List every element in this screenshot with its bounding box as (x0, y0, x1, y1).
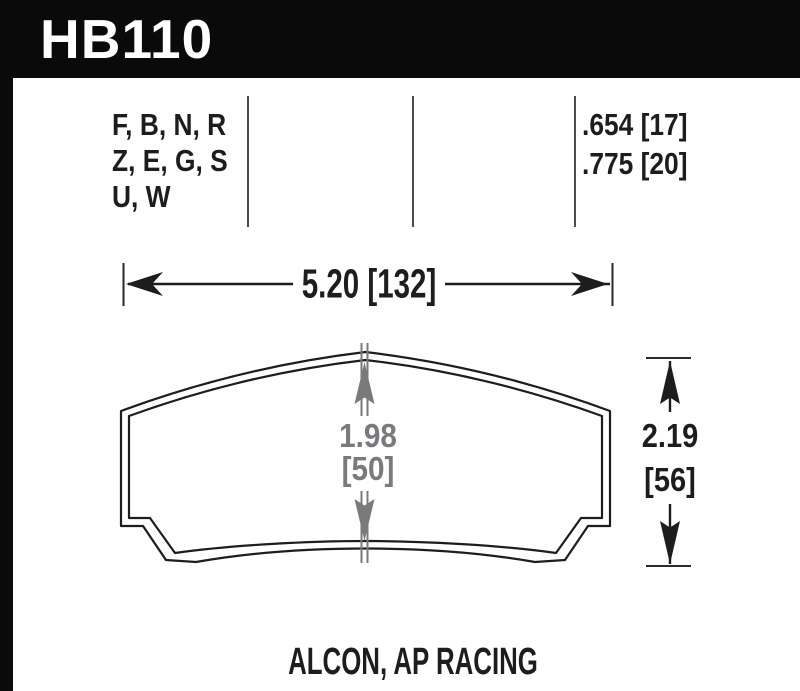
technical-drawing (0, 0, 800, 691)
inner-height-value: 1.98 (339, 419, 397, 452)
caliper-application-label: ALCON, AP RACING (288, 643, 538, 681)
brake-pad-spec-sheet: HB110 F, B, N, R Z, E, G, S U, W .654 [1… (0, 0, 800, 691)
overall-height-bracket: [56] (642, 458, 699, 502)
overall-height-value: 2.19 (642, 414, 699, 458)
inner-height-bracket: [50] (339, 452, 397, 485)
width-dimension-label: 5.20 [132] (293, 261, 445, 308)
inner-height-dimension-label: 1.98 [50] (334, 416, 403, 491)
overall-height-dimension-label: 2.19 [56] (636, 412, 703, 504)
